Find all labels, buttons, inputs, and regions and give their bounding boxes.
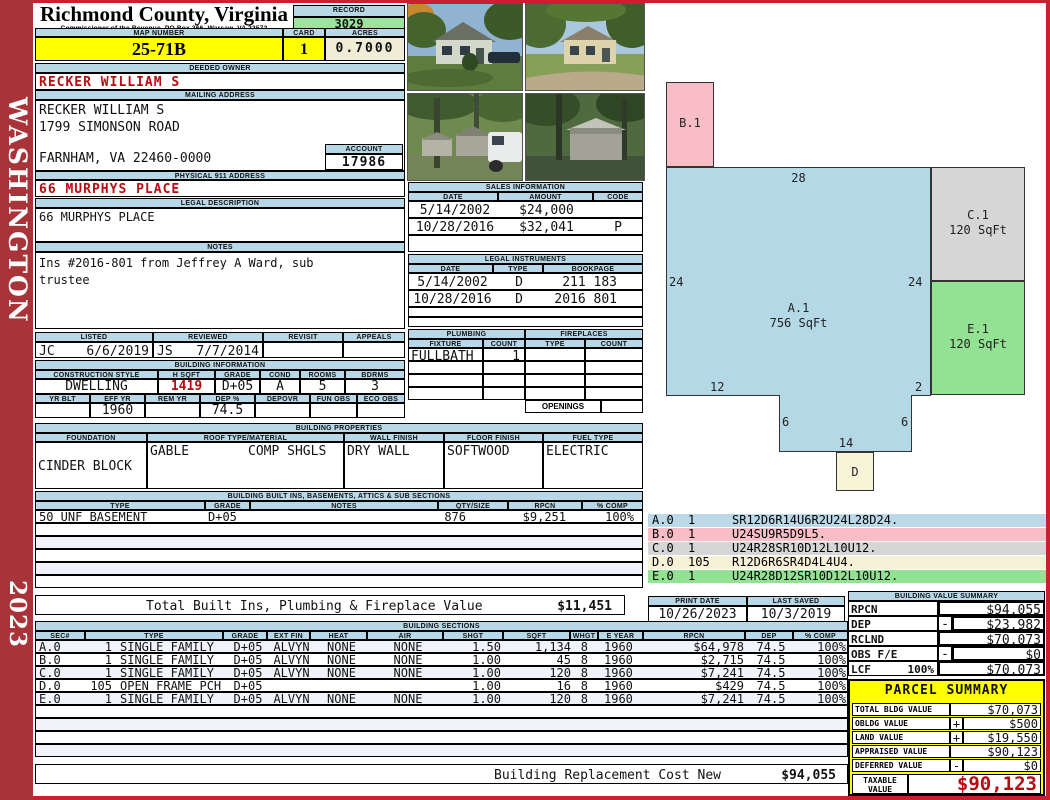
bs-sqft: 120 — [506, 667, 571, 679]
mailing-line-2: 1799 SIMONSON ROAD — [39, 120, 180, 135]
physical-address-value: 66 MURPHYS PLACE — [35, 180, 405, 197]
bs-sqft: 16 — [506, 680, 571, 692]
code-count: 1 — [688, 528, 732, 541]
bs-eyear: 1960 — [604, 693, 633, 705]
bs-grade: D+05 — [226, 641, 270, 653]
ps-obldg-label: OBLDG VALUE — [852, 717, 950, 730]
sales-code-label: CODE — [593, 192, 643, 201]
remyr-value — [145, 403, 200, 418]
deeded-owner-label: DEEDED OWNER — [35, 63, 405, 73]
bs-extfin: ALVYN — [270, 693, 313, 705]
bs-count: 1 — [86, 641, 112, 653]
bs-air-label: AIR — [367, 631, 443, 640]
openings-label: OPENINGS — [525, 400, 601, 413]
appeals-label: APPEALS — [343, 332, 405, 342]
sales-row: 5/14/2002 $24,000 — [408, 201, 643, 218]
building-section-row-empty — [35, 718, 848, 731]
sketch-code-row: C.0 1 U24R28SR10D12L10U12. — [648, 542, 1046, 555]
sale-amount: $24,000 — [499, 203, 594, 218]
reviewed-by: JS — [157, 344, 173, 358]
code-string: SR12D6R14U6R2U24L28D24. — [732, 514, 898, 527]
bs-eyear: 1960 — [604, 641, 633, 653]
bdrms-value: 3 — [345, 379, 405, 394]
replacement-cost-label: Building Replacement Cost New — [494, 768, 721, 783]
legal-description-label: LEGAL DESCRIPTION — [35, 198, 405, 208]
appeals-cell — [343, 342, 405, 358]
wall-finish-label: WALL FINISH — [344, 433, 444, 442]
vs-lcf-cell: LCF 100% — [848, 661, 938, 676]
year-vertical-label: 2023 — [4, 580, 31, 648]
ps-taxable-label: TAXABLE VALUE — [852, 774, 908, 794]
sketch-canvas: B.1 A.1 756 SqFt C.1 120 SqFt E.1 120 Sq… — [648, 3, 1046, 510]
vs-lcf-value: $70,073 — [938, 661, 1045, 676]
fixture-count-label: COUNT — [483, 339, 525, 348]
roof-type-value: GABLE — [150, 444, 189, 459]
bi-grade-label: GRADE — [205, 501, 250, 510]
reviewed-label: REVIEWED — [153, 332, 263, 342]
bs-dep-label: DEP — [745, 631, 793, 640]
bs-whgt-label: WHGT — [570, 631, 598, 640]
form-body: Richmond County, Virginia Commissioner o… — [33, 3, 1046, 796]
mailing-line-3: FARNHAM, VA 22460-0000 — [39, 151, 211, 166]
legal-instrument-row: 5/14/2002 D 211 183 — [408, 273, 643, 290]
bs-grade: D+05 — [226, 654, 270, 666]
bs-comp: 100% — [786, 693, 846, 705]
code-string: U24SU9R5D9L5. — [732, 528, 826, 541]
sketch-area-d: D — [836, 452, 874, 491]
ps-land-op: + — [950, 731, 963, 744]
sketch-a1-id: A.1 — [666, 301, 931, 316]
mailing-address-label: MAILING ADDRESS — [35, 90, 405, 100]
vs-obs-value: $0 — [952, 646, 1045, 661]
roof-cell: GABLE COMP SHGLS — [147, 442, 344, 489]
dim-bottom-right: 2 — [915, 380, 922, 394]
hsqft-value: 1419 — [158, 379, 215, 394]
li-date-label: DATE — [408, 264, 493, 273]
sketch-e1-sqft: 120 SqFt — [932, 337, 1024, 352]
fixture-empty — [408, 374, 483, 387]
deeded-owner-value: RECKER WILLIAM S — [35, 73, 405, 90]
bs-comp-label: % COMP — [793, 631, 848, 640]
bs-sqft: 45 — [506, 654, 571, 666]
replacement-cost-row: Building Replacement Cost New $94,055 — [35, 764, 848, 784]
bs-sqft: 1,134 — [506, 641, 571, 653]
code-string: U24R28SR10D12L10U12. — [732, 542, 877, 555]
roof-material-value: COMP SHGLS — [248, 444, 326, 459]
bs-extfin-label: EXT FIN — [267, 631, 310, 640]
foundation-label: FOUNDATION — [35, 433, 147, 442]
acres-label: ACRES — [325, 28, 405, 37]
notes-value: Ins #2016-801 from Jeffrey A Ward, sub t… — [36, 253, 339, 289]
built-in-row: 50 UNF BASEMENT D+05 876 $9,251 100% — [35, 510, 643, 523]
sketch-c1-sqft: 120 SqFt — [932, 223, 1024, 238]
bs-comp: 100% — [786, 641, 846, 653]
vs-obs-label: OBS F/E — [848, 646, 938, 661]
sketch-area-c1: C.1 120 SqFt — [931, 167, 1025, 281]
bs-whgt: 8 — [566, 654, 588, 666]
bs-sec: D.0 — [39, 680, 61, 692]
li-date: 5/14/2002 — [411, 275, 494, 290]
building-section-row: B.0 1 SINGLE FAMILY D+05 ALVYN NONE NONE… — [35, 653, 848, 666]
vs-lcf-label: LCF — [851, 664, 871, 676]
bs-sec-label: SEC# — [35, 631, 85, 640]
ecoobs-label: ECO OBS — [357, 394, 405, 403]
bs-rpcn: $429 — [644, 680, 744, 692]
county-vertical-label: WASHINGTON — [3, 97, 32, 324]
bs-rpcn: $7,241 — [644, 693, 744, 705]
code-sec: B.0 — [648, 528, 688, 541]
revisit-label: REVISIT — [263, 332, 343, 342]
fixture-count-empty — [483, 374, 525, 387]
vs-dep-value: $23,982 — [952, 616, 1045, 631]
print-date-value: 10/26/2023 — [648, 606, 747, 622]
fireplace-count-empty — [585, 374, 643, 387]
bs-type: SINGLE FAMILY — [120, 641, 214, 653]
bs-whgt: 8 — [566, 641, 588, 653]
ps-deferred-value: $0 — [963, 759, 1041, 772]
building-section-row-empty — [35, 705, 848, 718]
construction-style-label: CONSTRUCTION STYLE — [35, 370, 158, 379]
bs-eyear: 1960 — [604, 680, 633, 692]
sales-date-label: DATE — [408, 192, 498, 201]
ps-taxable-value: $90,123 — [908, 774, 1041, 794]
ps-appraised-value: $90,123 — [950, 745, 1041, 758]
notes-label: NOTES — [35, 242, 405, 252]
physical-address-label: PHYSICAL 911 ADDRESS — [35, 171, 405, 180]
sketch-seam — [780, 394, 911, 398]
sketch-e1-id: E.1 — [932, 322, 1024, 337]
sales-label: SALES INFORMATION — [408, 182, 643, 192]
built-in-row-empty — [35, 575, 643, 588]
building-section-row: D.0 105 OPEN FRAME PCH D+05 1.00 16 8 19… — [35, 679, 848, 692]
page-title: Richmond County, Virginia — [35, 4, 293, 25]
vs-rpcn-label: RPCN — [848, 601, 938, 616]
building-section-row-empty — [35, 731, 848, 744]
bs-sqft: 120 — [506, 693, 571, 705]
bs-extfin: ALVYN — [270, 667, 313, 679]
sketch-code-row: D.0 105 R12D6R6SR4D4L4U4. — [648, 556, 1046, 569]
sketch-area-a1-label: A.1 756 SqFt — [666, 301, 931, 331]
total-built-ins-row: Total Built Ins, Plumbing & Fireplace Va… — [35, 595, 625, 615]
parcel-summary: PARCEL SUMMARY TOTAL BLDG VALUE $70,073 … — [848, 679, 1045, 796]
ps-total-bldg-value: $70,073 — [950, 703, 1041, 716]
reviewed-date: 7/7/2014 — [196, 344, 259, 358]
bs-sec: B.0 — [39, 654, 61, 666]
bdrms-label: BDRMS — [345, 370, 405, 379]
code-sec: A.0 — [648, 514, 688, 527]
bs-shgt: 1.00 — [441, 654, 501, 666]
bs-grade-label: GRADE — [223, 631, 267, 640]
rooms-label: ROOMS — [300, 370, 345, 379]
fireplace-type-label: TYPE — [525, 339, 585, 348]
ps-deferred-op: - — [950, 759, 963, 772]
sketch-code-row: A.0 1 SR12D6R14U6R2U24L28D24. — [648, 514, 1046, 527]
wall-finish-value: DRY WALL — [347, 444, 410, 459]
bi-comp: 100% — [576, 511, 634, 523]
depovr-label: DEPOVR — [255, 394, 310, 403]
bs-comp: 100% — [786, 680, 846, 692]
property-photo-3 — [407, 93, 523, 181]
code-count: 1 — [688, 570, 732, 583]
remyr-label: REM YR — [145, 394, 200, 403]
li-bookpage: 211 183 — [544, 275, 617, 290]
legal-instrument-row-empty — [408, 317, 643, 327]
built-in-row-empty — [35, 536, 643, 549]
replacement-cost-value: $94,055 — [736, 768, 836, 783]
ps-land-value: $19,550 — [963, 731, 1041, 744]
sketch-code-row: B.0 1 U24SU9R5D9L5. — [648, 528, 1046, 541]
fireplace-count-empty — [585, 348, 643, 361]
bs-rpcn: $2,715 — [644, 654, 744, 666]
code-string: R12D6R6SR4D4L4U4. — [732, 556, 855, 569]
ecoobs-value — [357, 403, 405, 418]
ps-obldg-value: $500 — [963, 717, 1041, 730]
li-type-label: TYPE — [493, 264, 543, 273]
vs-rpcn-value: $94,055 — [938, 601, 1045, 616]
bs-count: 105 — [86, 680, 112, 692]
bs-whgt: 8 — [566, 693, 588, 705]
cond-value: A — [260, 379, 300, 394]
roof-label: ROOF TYPE/MATERIAL — [147, 433, 344, 442]
fireplace-type-empty — [525, 348, 585, 361]
vs-rclnd-value: $70,073 — [938, 631, 1045, 646]
legal-instruments-label: LEGAL INSTRUMENTS — [408, 254, 643, 264]
bi-comp-label: % COMP — [582, 501, 643, 510]
listed-label: LISTED — [35, 332, 153, 342]
bi-grade: D+05 — [208, 511, 237, 523]
bi-qty-label: QTY/SIZE — [438, 501, 508, 510]
bs-rpcn: $64,978 — [644, 641, 744, 653]
bs-sqft-label: SQFT — [503, 631, 570, 640]
bs-shgt: 1.50 — [441, 641, 501, 653]
dim-top: 28 — [666, 171, 931, 185]
bi-qty: 876 — [366, 511, 466, 523]
total-built-ins-label: Total Built Ins, Plumbing & Fireplace Va… — [146, 599, 483, 614]
bs-heat-label: HEAT — [310, 631, 367, 640]
legal-instrument-row: 10/28/2016 D 2016 801 — [408, 290, 643, 307]
effyr-label: EFF YR — [90, 394, 145, 403]
dim-left: 24 — [669, 275, 683, 289]
li-date: 10/28/2016 — [411, 292, 494, 307]
sketch-a1-sqft: 756 SqFt — [666, 316, 931, 331]
listed-cell: JC 6/6/2019 — [35, 342, 153, 358]
grade-value: D+05 — [215, 379, 260, 394]
fireplace-type-empty — [525, 361, 585, 374]
bs-comp: 100% — [786, 667, 846, 679]
revisit-cell — [263, 342, 343, 358]
bs-shgt: 1.00 — [441, 680, 501, 692]
property-photo-1 — [407, 3, 523, 91]
bs-type: SINGLE FAMILY — [120, 693, 214, 705]
bs-eyear: 1960 — [604, 667, 633, 679]
code-string: U24R28D12SR10D12L10U12. — [732, 570, 898, 583]
dim-right: 24 — [908, 275, 922, 289]
sale-amount: $32,041 — [499, 220, 594, 235]
ps-obldg-op: + — [950, 717, 963, 730]
bs-grade: D+05 — [226, 667, 270, 679]
bs-air: NONE — [370, 641, 446, 653]
funobs-value — [310, 403, 357, 418]
fireplace-count-empty — [585, 361, 643, 374]
property-record-card: WASHINGTON 2023 Richmond County, Virgini… — [0, 0, 1050, 800]
legal-description-value: 66 MURPHYS PLACE — [35, 208, 405, 242]
bs-count: 1 — [86, 667, 112, 679]
cond-label: COND — [260, 370, 300, 379]
bs-extfin: ALVYN — [270, 641, 313, 653]
deppct-label: DEP % — [200, 394, 255, 403]
fuel-type-value: ELECTRIC — [546, 444, 609, 459]
code-count: 1 — [688, 542, 732, 555]
floor-finish-cell: SOFTWOOD — [444, 442, 543, 489]
sketch-d-label: D — [837, 465, 873, 480]
bs-heat: NONE — [313, 667, 370, 679]
building-properties-label: BUILDING PROPERTIES — [35, 423, 643, 433]
rooms-value: 5 — [300, 379, 345, 394]
sketch-c1-id: C.1 — [932, 208, 1024, 223]
building-section-row: A.0 1 SINGLE FAMILY D+05 ALVYN NONE NONE… — [35, 640, 848, 653]
building-sections-label: BUILDING SECTIONS — [35, 621, 848, 631]
notes-box: Ins #2016-801 from Jeffrey A Ward, sub t… — [35, 252, 405, 329]
last-saved-label: LAST SAVED — [747, 596, 845, 606]
map-number-label: MAP NUMBER — [35, 28, 283, 37]
bs-heat: NONE — [313, 641, 370, 653]
sidebar: WASHINGTON 2023 — [0, 0, 33, 800]
effyr-value: 1960 — [90, 403, 145, 418]
vs-dep-label: DEP — [848, 616, 938, 631]
fireplace-count-empty — [585, 387, 643, 400]
code-sec: E.0 — [648, 570, 688, 583]
ps-appraised-label: APPRAISED VALUE — [852, 745, 950, 758]
dim-bottom-left: 12 — [710, 380, 724, 394]
bs-count: 1 — [86, 654, 112, 666]
bs-shgt: 1.00 — [441, 693, 501, 705]
last-saved-value: 10/3/2019 — [747, 606, 845, 622]
bs-extfin: ALVYN — [270, 654, 313, 666]
bs-type: OPEN FRAME PCH — [120, 680, 221, 692]
vs-rclnd-label: RCLND — [848, 631, 938, 646]
fixture-empty — [408, 387, 483, 400]
property-photo-2 — [525, 3, 645, 91]
bi-type-label: TYPE — [35, 501, 205, 510]
building-info-label: BUILDING INFORMATION — [35, 360, 405, 370]
code-count: 105 — [688, 556, 732, 569]
vs-obs-op: - — [938, 646, 952, 661]
dim-notch-right: 6 — [901, 415, 908, 429]
bs-comp: 100% — [786, 654, 846, 666]
sales-row: 10/28/2016 $32,041 P — [408, 218, 643, 235]
building-value-summary-label: BUILDING VALUE SUMMARY — [848, 591, 1045, 601]
vs-dep-op: - — [938, 616, 952, 631]
dim-notch-width: 14 — [826, 436, 866, 450]
code-count: 1 — [688, 514, 732, 527]
account-value: 17986 — [325, 154, 403, 170]
bs-shgt: 1.00 — [441, 667, 501, 679]
bs-sec: C.0 — [39, 667, 61, 679]
bs-air: NONE — [370, 654, 446, 666]
dim-notch-left: 6 — [782, 415, 789, 429]
yrblt-value — [35, 403, 90, 418]
parcel-summary-title: PARCEL SUMMARY — [850, 681, 1043, 701]
foundation-value: CINDER BLOCK — [38, 459, 132, 474]
acres-value: 0.7000 — [325, 37, 405, 61]
foundation-cell: CINDER BLOCK — [35, 442, 147, 489]
li-type: D — [494, 275, 544, 290]
bs-eyear: 1960 — [604, 654, 633, 666]
bi-rpcn-label: RPCN — [508, 501, 582, 510]
sale-date: 5/14/2002 — [411, 203, 499, 218]
built-in-row-empty — [35, 562, 643, 575]
bs-rpcn: $7,241 — [644, 667, 744, 679]
deppct-value: 74.5 — [200, 403, 255, 418]
bs-shgt-label: SHGT — [443, 631, 503, 640]
fixture-count-empty — [483, 361, 525, 374]
bs-sec: E.0 — [39, 693, 61, 705]
fixture-count-empty — [483, 387, 525, 400]
plumbing-label: PLUMBING — [408, 329, 525, 339]
fixture-label: FIXTURE — [408, 339, 483, 348]
sale-code: P — [594, 220, 642, 235]
bs-grade: D+05 — [226, 693, 270, 705]
vs-lcf-pct: 100% — [908, 664, 935, 676]
sketch-area-b1: B.1 — [666, 82, 714, 167]
fixture-count-value: 1 — [483, 348, 525, 361]
ps-land-label: LAND VALUE — [852, 731, 950, 744]
building-section-row-empty — [35, 744, 848, 757]
sales-amount-label: AMOUNT — [498, 192, 593, 201]
depovr-value — [255, 403, 310, 418]
yrblt-label: YR BLT — [35, 394, 90, 403]
bs-count: 1 — [86, 693, 112, 705]
floor-finish-label: FLOOR FINISH — [444, 433, 543, 442]
print-date-label: PRINT DATE — [648, 596, 747, 606]
fixture-value: FULLBATH — [408, 348, 483, 361]
card-value: 1 — [283, 37, 325, 61]
building-section-row: C.0 1 SINGLE FAMILY D+05 ALVYN NONE NONE… — [35, 666, 848, 679]
ps-total-bldg-label: TOTAL BLDG VALUE — [852, 703, 950, 716]
code-sec: D.0 — [648, 556, 688, 569]
li-bookpage-label: BOOKPAGE — [543, 264, 643, 273]
fireplace-type-empty — [525, 387, 585, 400]
bs-eyear-label: E YEAR — [598, 631, 643, 640]
fireplaces-label: FIREPLACES — [525, 329, 643, 339]
sketch-area-a1 — [666, 167, 931, 396]
total-built-ins-value: $11,451 — [516, 599, 612, 614]
wall-finish-cell: DRY WALL — [344, 442, 444, 489]
sketch-code-row: E.0 1 U24R28D12SR10D12L10U12. — [648, 570, 1046, 583]
legal-instrument-row-empty — [408, 307, 643, 317]
map-number-value: 25-71B — [35, 37, 283, 61]
reviewed-cell: JS 7/7/2014 — [153, 342, 263, 358]
bs-air: NONE — [370, 667, 446, 679]
bs-heat: NONE — [313, 693, 370, 705]
bs-whgt: 8 — [566, 680, 588, 692]
fixture-empty — [408, 361, 483, 374]
code-sec: C.0 — [648, 542, 688, 555]
bs-type: SINGLE FAMILY — [120, 654, 214, 666]
sales-row-empty — [408, 235, 643, 252]
bs-heat: NONE — [313, 654, 370, 666]
li-bookpage: 2016 801 — [544, 292, 617, 307]
sketch-area-b1-label: B.1 — [667, 116, 713, 131]
bi-rpcn: $9,251 — [476, 511, 566, 523]
fireplace-type-empty — [525, 374, 585, 387]
bs-type-label: TYPE — [85, 631, 223, 640]
bs-air: NONE — [370, 693, 446, 705]
bs-whgt: 8 — [566, 667, 588, 679]
bi-type: 50 UNF BASEMENT — [39, 511, 147, 523]
floor-finish-value: SOFTWOOD — [447, 444, 510, 459]
listed-date: 6/6/2019 — [86, 344, 149, 358]
